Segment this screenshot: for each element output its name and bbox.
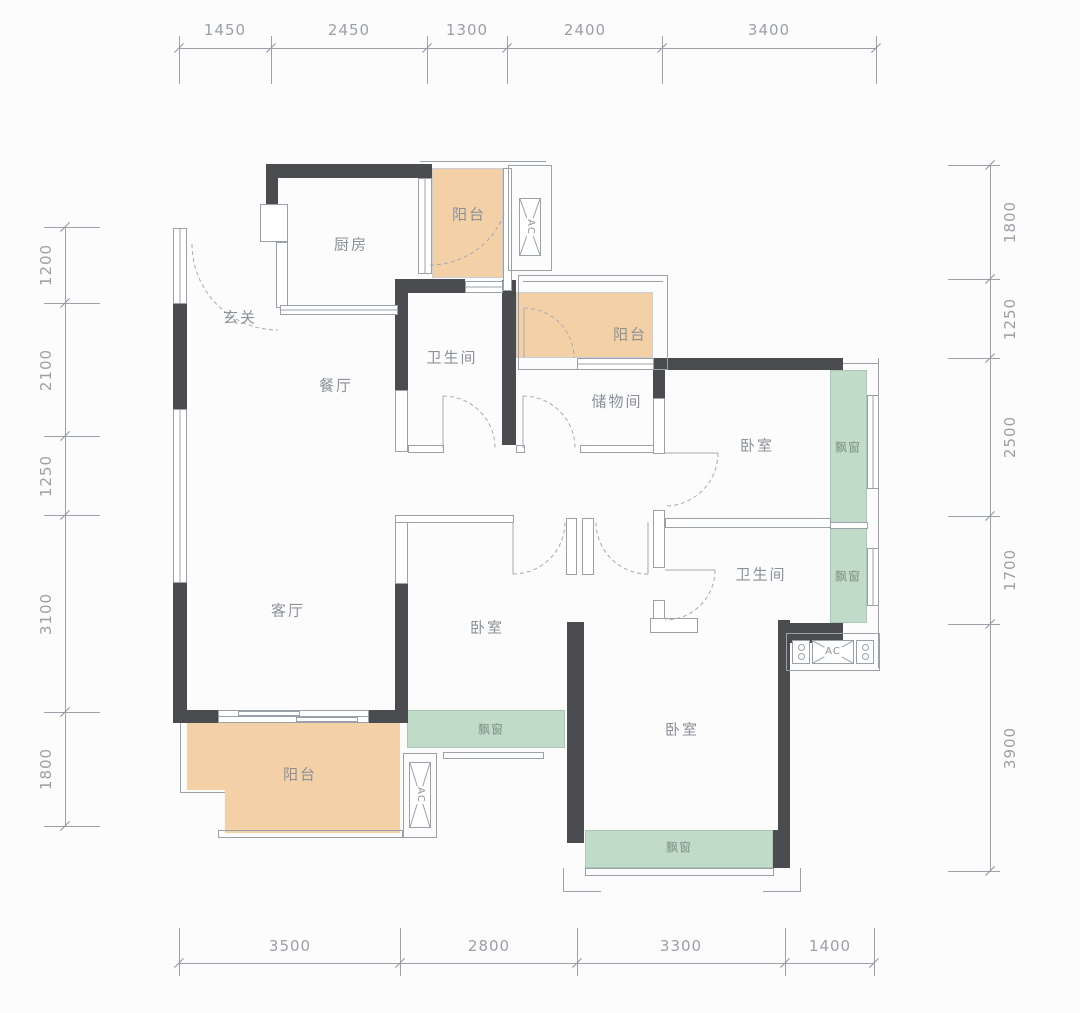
dim-value: 1250 [1001,298,1019,340]
dim-value: 1300 [446,21,488,39]
dim-value: 2400 [564,21,606,39]
dim-value: 1800 [37,748,55,790]
door-arc-bedroom2 [513,522,565,574]
dim-value: 2450 [328,21,370,39]
dim-extension-line [44,712,100,713]
dim-extension-line [948,516,1000,517]
dim-extension-line [44,515,100,516]
dim-value: 1250 [37,455,55,497]
room-label-bath1: 卫生间 [426,347,477,368]
dim-extension-line [179,928,180,976]
dim-value: 2500 [1001,416,1019,458]
room-label-kitchen: 厨房 [334,234,368,255]
dim-extension-line [785,928,786,976]
room-label-storage: 储物间 [591,391,642,412]
dimension-line-top [179,48,876,49]
dim-extension-line [948,871,1000,872]
dim-value: 1800 [1001,201,1019,243]
dim-extension-line [948,358,1000,359]
dimension-line-bottom [179,963,874,964]
dim-extension-line [427,36,428,84]
door-arc-bath2 [665,570,715,620]
room-label-entry: 玄关 [223,307,257,328]
door-arc-balcony-mid [524,308,574,358]
dim-extension-line [44,303,100,304]
room-label-bedroom2: 卧室 [470,617,504,638]
dim-extension-line [179,36,180,84]
dim-value: 2800 [468,937,510,955]
dim-value: 1450 [204,21,246,39]
dim-extension-line [948,165,1000,166]
dimension-line-left [65,227,66,826]
dim-extension-line [662,36,663,84]
floor-plan: AC AC AC 厨房 阳台 玄关 卫生间 阳台 储物间 卧室 [0,0,1080,1013]
door-arc-bedroom1 [665,453,718,506]
door-arc-bedroom3 [596,522,648,574]
dim-extension-line [400,928,401,976]
dim-value: 3400 [748,21,790,39]
room-label-bedroom3: 卧室 [665,719,699,740]
dim-value: 1700 [1001,549,1019,591]
door-arc-storage [523,396,575,448]
dim-value: 3900 [1001,727,1019,769]
dim-extension-line [577,928,578,976]
bay-window-label: 飘窗 [478,721,504,738]
dim-extension-line [44,227,100,228]
room-label-bedroom1: 卧室 [740,435,774,456]
room-label-bath2: 卫生间 [735,564,786,585]
room-label-living: 客厅 [271,600,305,621]
dim-extension-line [876,36,877,84]
dim-extension-line [948,624,1000,625]
dim-value: 3100 [37,593,55,635]
door-swing-arcs [0,0,1080,1013]
room-label-balcony-bottom: 阳台 [283,764,317,785]
dim-extension-line [271,36,272,84]
door-arc-bath1 [443,396,495,448]
dim-extension-line [507,36,508,84]
bay-window-label: 飘窗 [666,839,692,856]
dimension-line-right [990,165,991,871]
dim-value: 1200 [37,244,55,286]
dim-extension-line [44,436,100,437]
dim-value: 3300 [660,937,702,955]
bay-window-label: 飘窗 [835,439,861,456]
bay-window-label: 飘窗 [835,568,861,585]
dim-extension-line [948,279,1000,280]
dim-value: 2100 [37,349,55,391]
dim-value: 1400 [809,937,851,955]
room-label-balcony-mid: 阳台 [613,324,647,345]
room-label-dining: 餐厅 [319,375,353,396]
dim-extension-line [44,826,100,827]
dim-extension-line [874,928,875,976]
dim-value: 3500 [269,937,311,955]
room-label-balcony-top: 阳台 [452,204,486,225]
